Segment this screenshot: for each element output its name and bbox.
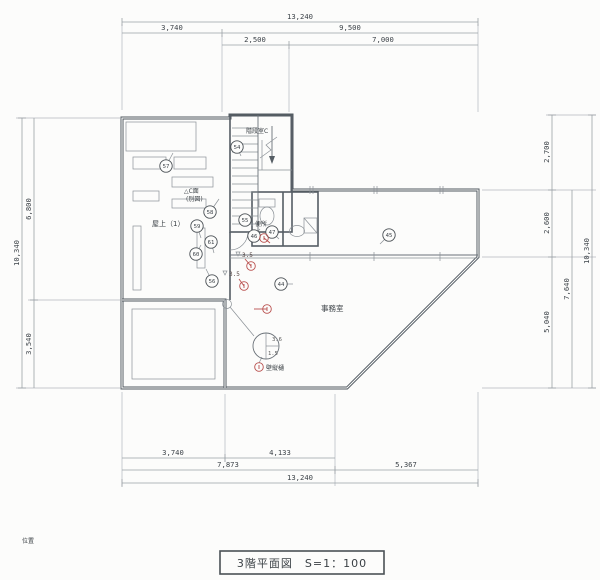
ref-mark-number: 54 — [234, 145, 241, 151]
ref-mark-56: 56 — [206, 269, 218, 287]
ref-mark-46: 46 — [248, 229, 260, 242]
vent-feature: 3.6 1.5 — [223, 300, 282, 364]
ref-mark-number: 57 — [163, 164, 170, 170]
level-mark-upper: 3.5 — [242, 252, 253, 259]
ref-mark-45: 45 — [380, 229, 395, 244]
toilet-tank — [259, 199, 275, 207]
corner-note: 位置 — [22, 537, 34, 545]
ref-mark-number: 44 — [278, 282, 285, 288]
stair-break-line — [260, 137, 277, 158]
dim-right-c: 5,040 — [542, 311, 551, 333]
wall-gutter-label: 壁縦樋 — [266, 364, 284, 372]
window-ticks — [310, 186, 443, 261]
ref-mark-number: 61 — [208, 240, 215, 246]
ref-mark-44: 44 — [275, 278, 293, 290]
interior-walls — [126, 115, 478, 379]
dim-left-total: 10,340 — [12, 240, 21, 266]
c-plane-note-line2: (別図) — [186, 195, 203, 203]
title-block: 3階平面図 S=1：100 — [220, 551, 384, 574]
dim-right-total: 10,340 — [582, 238, 591, 264]
ref-mark-54: 54 — [231, 141, 243, 156]
ref-mark-number: 59 — [194, 224, 201, 230]
dimensions-right: 2,700 2,600 5,040 7,640 10,340 — [542, 115, 596, 388]
ref-mark-60: 60 — [190, 245, 202, 260]
room-label-stair: 階段室C — [246, 127, 268, 135]
vent-value-upper: 3.6 — [272, 337, 282, 343]
stair-arrow-head — [269, 156, 275, 164]
dim-left-b: 3,540 — [24, 333, 33, 355]
dim-bottom-c: 7,873 — [217, 460, 239, 469]
room-labels: 階段室C 便所 屋上（1） 事務室 △C面 (別図) 壁縦樋 — [152, 127, 344, 372]
ref-mark-57: 57 — [160, 153, 173, 172]
floor-plan-canvas: 13,240 3,740 9,500 2,500 7,000 3,740 4,1… — [0, 0, 600, 580]
ref-mark-number: 60 — [193, 252, 200, 258]
dim-top-total: 13,240 — [287, 12, 313, 21]
drawing-sheet: 13,240 3,740 9,500 2,500 7,000 3,740 4,1… — [0, 0, 600, 580]
ref-mark-number: 55 — [242, 218, 249, 224]
dim-bottom-total: 13,240 — [287, 473, 313, 482]
ref-mark-number: 47 — [269, 230, 276, 236]
ref-mark-number: 56 — [209, 279, 216, 285]
dim-bottom-b: 4,133 — [269, 448, 291, 457]
dimensions-bottom: 3,740 4,133 7,873 5,367 13,240 — [122, 448, 478, 487]
room-label-office: 事務室 — [321, 303, 344, 313]
dim-left-a: 6,800 — [24, 198, 33, 220]
ref-mark-number: 58 — [207, 210, 214, 216]
gutter-mark — [239, 279, 248, 290]
reference-marks: 444546475455565758596061 — [160, 141, 395, 290]
gutter-mark — [255, 363, 264, 372]
dim-top-c: 2,500 — [244, 35, 266, 44]
level-mark-lower: 3.5 — [229, 271, 240, 278]
dim-bottom-d: 5,367 — [395, 460, 417, 469]
ref-mark-number: 45 — [386, 233, 393, 239]
gutter-mark — [254, 305, 271, 314]
gutter-mark — [245, 259, 255, 270]
dim-top-b: 9,500 — [339, 23, 361, 32]
dim-right-b: 2,600 — [542, 212, 551, 234]
vent-value-lower: 1.5 — [268, 351, 278, 357]
dimensions-top: 13,240 3,740 9,500 2,500 7,000 — [122, 12, 478, 49]
ref-mark-61: 61 — [205, 236, 217, 253]
exterior-walls — [122, 115, 478, 388]
dim-top-a: 3,740 — [161, 23, 183, 32]
dim-top-d: 7,000 — [372, 35, 394, 44]
dimensions-left: 10,340 6,800 3,540 — [12, 118, 38, 388]
dim-bottom-a: 3,740 — [162, 448, 184, 457]
room-label-rooftop: 屋上（1） — [152, 219, 184, 228]
dim-right-span: 7,640 — [562, 278, 571, 300]
dim-right-a: 2,700 — [542, 141, 551, 163]
drawing-title: 3階平面図 S=1：100 — [237, 556, 367, 570]
room-label-toilet: 便所 — [255, 220, 267, 228]
level-marks: 3.5 3.5 — [223, 252, 253, 278]
ref-mark-number: 46 — [251, 234, 258, 240]
door-swing-arc — [230, 232, 248, 250]
c-plane-note-line1: △C面 — [184, 188, 199, 195]
